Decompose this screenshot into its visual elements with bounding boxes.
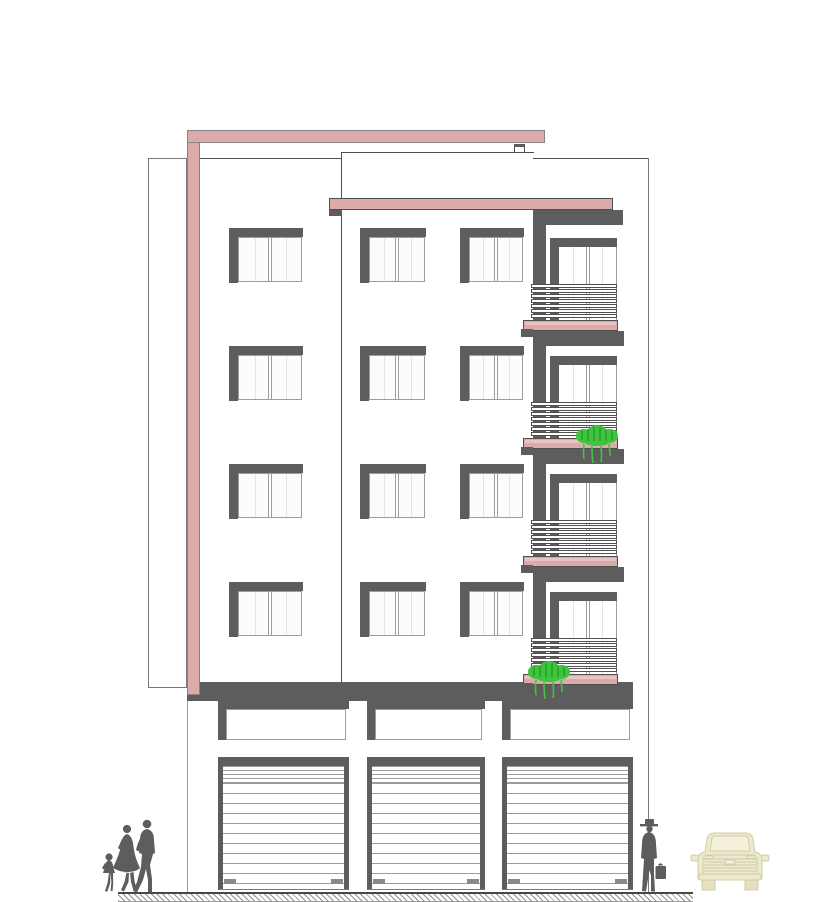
window-glass (469, 591, 523, 636)
window-pane-reflection (384, 592, 385, 635)
shop-transom-glass (226, 709, 346, 740)
shutter-slats (223, 766, 344, 889)
window-pane-reflection (411, 238, 412, 281)
window-pane-reflection (286, 592, 287, 635)
window-frame-top (229, 582, 303, 591)
family-silhouette (98, 812, 168, 894)
shutter-side-rail (344, 766, 349, 889)
shutter-handle (331, 879, 343, 884)
window-frame-top (460, 228, 524, 237)
window-pane-reflection (509, 474, 510, 517)
balcony-railing-bar (531, 638, 617, 642)
sidewalk-hatch (118, 892, 693, 902)
balcony-plant (574, 422, 620, 468)
window-pane-reflection (483, 356, 484, 399)
balcony-slab-highlight (525, 322, 616, 325)
window-mullion (268, 474, 272, 517)
window-pane-reflection (411, 592, 412, 635)
balcony-door-frame-top (550, 356, 617, 365)
balcony-railing-bar (531, 520, 617, 524)
window-frame-top (229, 228, 303, 237)
shutter-handle (508, 879, 520, 884)
businessman-silhouette (634, 818, 670, 894)
window-pane-reflection (255, 238, 256, 281)
balcony-railing-bar (531, 540, 617, 544)
window-mullion (268, 592, 272, 635)
window-pane-reflection (286, 356, 287, 399)
elevation-drawing (0, 0, 828, 902)
balcony-railing-bar (531, 402, 617, 406)
window-mullion (395, 474, 399, 517)
balcony-slab-highlight (525, 558, 616, 561)
balcony-slab (523, 556, 618, 567)
window-frame-left (360, 346, 369, 401)
balcony-railing-bar (531, 304, 617, 308)
window-pane-reflection (384, 238, 385, 281)
window-frame-left (229, 228, 238, 283)
balcony-door-frame-top (550, 592, 617, 601)
shop-roller-shutter (502, 757, 633, 890)
window-glass (369, 237, 425, 282)
window-glass (238, 473, 302, 518)
building-left-edge-ground (187, 701, 188, 892)
window-pane-reflection (483, 238, 484, 281)
window-mullion (395, 592, 399, 635)
building-right-edge (648, 158, 649, 893)
window-glass (469, 237, 523, 282)
plant-icon (526, 658, 572, 704)
shutter-side-rail (628, 766, 633, 889)
balcony-railing-bar (531, 535, 617, 539)
window-frame-left (460, 582, 469, 637)
window-pane-reflection (509, 592, 510, 635)
window-frame-top (460, 582, 524, 591)
balcony-slab-end (521, 565, 533, 573)
balcony-railing-bar (531, 545, 617, 549)
shop-transom-frame-left (218, 709, 226, 740)
window-mullion (268, 356, 272, 399)
shutter-handle (373, 879, 385, 884)
window-glass (238, 237, 302, 282)
balcony-railing-bar (531, 284, 617, 288)
shop-transom-glass (375, 709, 482, 740)
shop-transom-frame-left (502, 709, 510, 740)
car-icon (690, 830, 770, 892)
balcony-railing-bar (531, 653, 617, 657)
window-mullion (395, 356, 399, 399)
shutter-top-rail (218, 757, 349, 766)
window-frame-left (229, 346, 238, 401)
shutter-handle (615, 879, 627, 884)
balcony-railing-bar (531, 417, 617, 421)
window-mullion (494, 474, 498, 517)
shutter-top-rail (367, 757, 485, 766)
window-frame-left (360, 464, 369, 519)
car-silhouette (690, 830, 770, 892)
shop-transom-glass (510, 709, 630, 740)
shutter-side-rail (480, 766, 485, 889)
window-frame-left (460, 346, 469, 401)
window-pane-reflection (411, 474, 412, 517)
window-pane-reflection (286, 474, 287, 517)
shop-transom-header (502, 701, 633, 709)
window-pane-reflection (255, 592, 256, 635)
balcony-slab-end (521, 447, 533, 455)
balcony-railing-bar (531, 289, 617, 293)
window-frame-top (360, 464, 426, 473)
shop-roller-shutter (218, 757, 349, 890)
window-glass (238, 355, 302, 400)
window-glass (469, 473, 523, 518)
window-mullion (395, 238, 399, 281)
window-glass (469, 355, 523, 400)
balcony-railing-bar (531, 407, 617, 411)
family-icon (98, 812, 168, 894)
balcony-railing-bar (531, 530, 617, 534)
window-frame-top (229, 464, 303, 473)
balcony-railing-bar (531, 525, 617, 529)
window-pane-reflection (411, 356, 412, 399)
window-pane-reflection (255, 356, 256, 399)
window-glass (369, 355, 425, 400)
window-glass (369, 473, 425, 518)
balcony-railing-bar (531, 412, 617, 416)
window-frame-left (360, 582, 369, 637)
balcony-slab-shadow (533, 331, 624, 346)
balcony-door-frame-top (550, 474, 617, 483)
window-pane-reflection (483, 474, 484, 517)
window-mullion (268, 238, 272, 281)
window-frame-left (229, 582, 238, 637)
window-mullion (494, 356, 498, 399)
window-frame-left (460, 464, 469, 519)
balcony-railing-bar (531, 648, 617, 652)
window-pane-reflection (384, 356, 385, 399)
balcony-railing-bar (531, 309, 617, 313)
window-frame-left (229, 464, 238, 519)
window-frame-left (360, 228, 369, 283)
shutter-handle (467, 879, 479, 884)
window-pane-reflection (509, 356, 510, 399)
window-frame-top (360, 228, 426, 237)
businessman-icon (634, 818, 670, 894)
shop-transom-header (367, 701, 485, 709)
shutter-slats (372, 766, 480, 889)
plant-icon (574, 422, 620, 468)
shop-transom-frame-left (367, 709, 375, 740)
window-pane-reflection (286, 238, 287, 281)
shutter-top-rail (502, 757, 633, 766)
window-glass (238, 591, 302, 636)
window-frame-top (460, 464, 524, 473)
window-pane-reflection (384, 474, 385, 517)
balcony-railing-bar (531, 643, 617, 647)
balcony-plant (526, 658, 572, 704)
balcony-railing-bar (531, 314, 617, 318)
window-frame-top (360, 346, 426, 355)
window-frame-top (460, 346, 524, 355)
balcony-slab-end (521, 329, 533, 337)
window-pane-reflection (483, 592, 484, 635)
window-frame-left (460, 228, 469, 283)
shutter-slats (507, 766, 628, 889)
balcony-railing-bar (531, 550, 617, 554)
window-glass (369, 591, 425, 636)
window-mullion (494, 238, 498, 281)
balcony-slab (523, 320, 618, 331)
shop-transom-header (218, 701, 349, 709)
balcony-railing-bar (531, 299, 617, 303)
window-frame-top (229, 346, 303, 355)
shutter-handle (224, 879, 236, 884)
balcony-door-frame-top (550, 238, 617, 247)
window-frame-top (360, 582, 426, 591)
shop-roller-shutter (367, 757, 485, 890)
balcony-railing-bar (531, 294, 617, 298)
window-pane-reflection (255, 474, 256, 517)
window-pane-reflection (509, 238, 510, 281)
window-mullion (494, 592, 498, 635)
balcony-slab-shadow (533, 567, 624, 582)
generated-layer (0, 0, 828, 902)
